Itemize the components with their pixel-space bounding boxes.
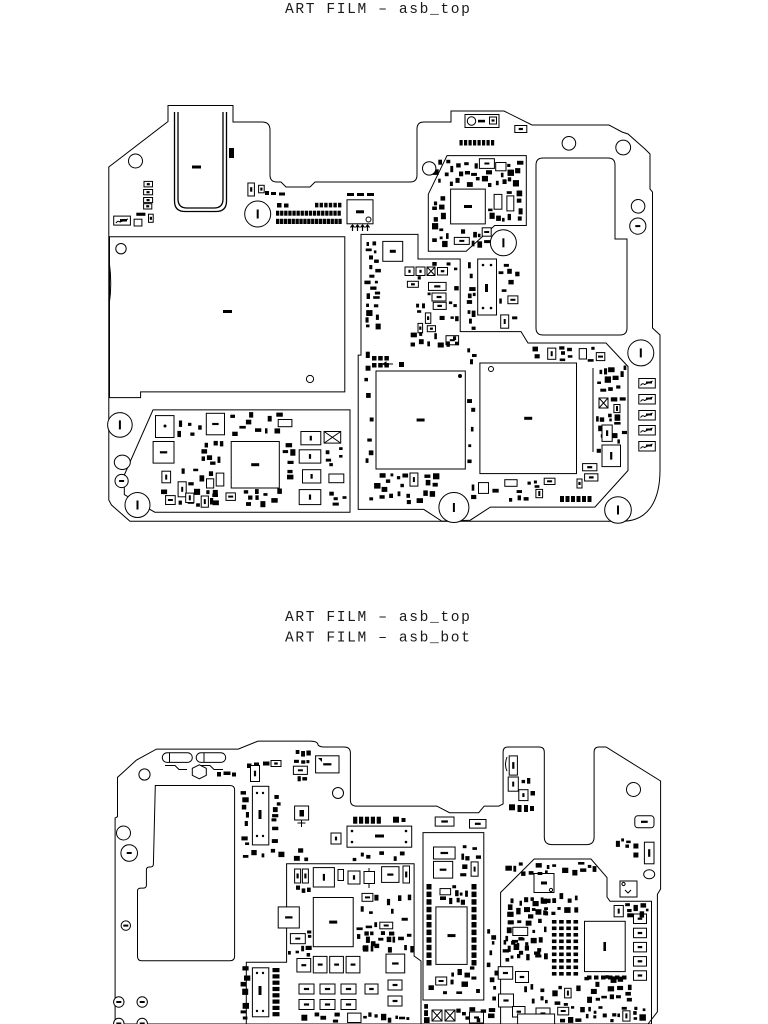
- svg-text:ART FILM – asb_top: ART FILM – asb_top: [285, 2, 471, 18]
- svg-text:ART FILM – asb_bot: ART FILM – asb_bot: [285, 631, 471, 647]
- svg-text:ART FILM – asb_top: ART FILM – asb_top: [285, 610, 471, 626]
